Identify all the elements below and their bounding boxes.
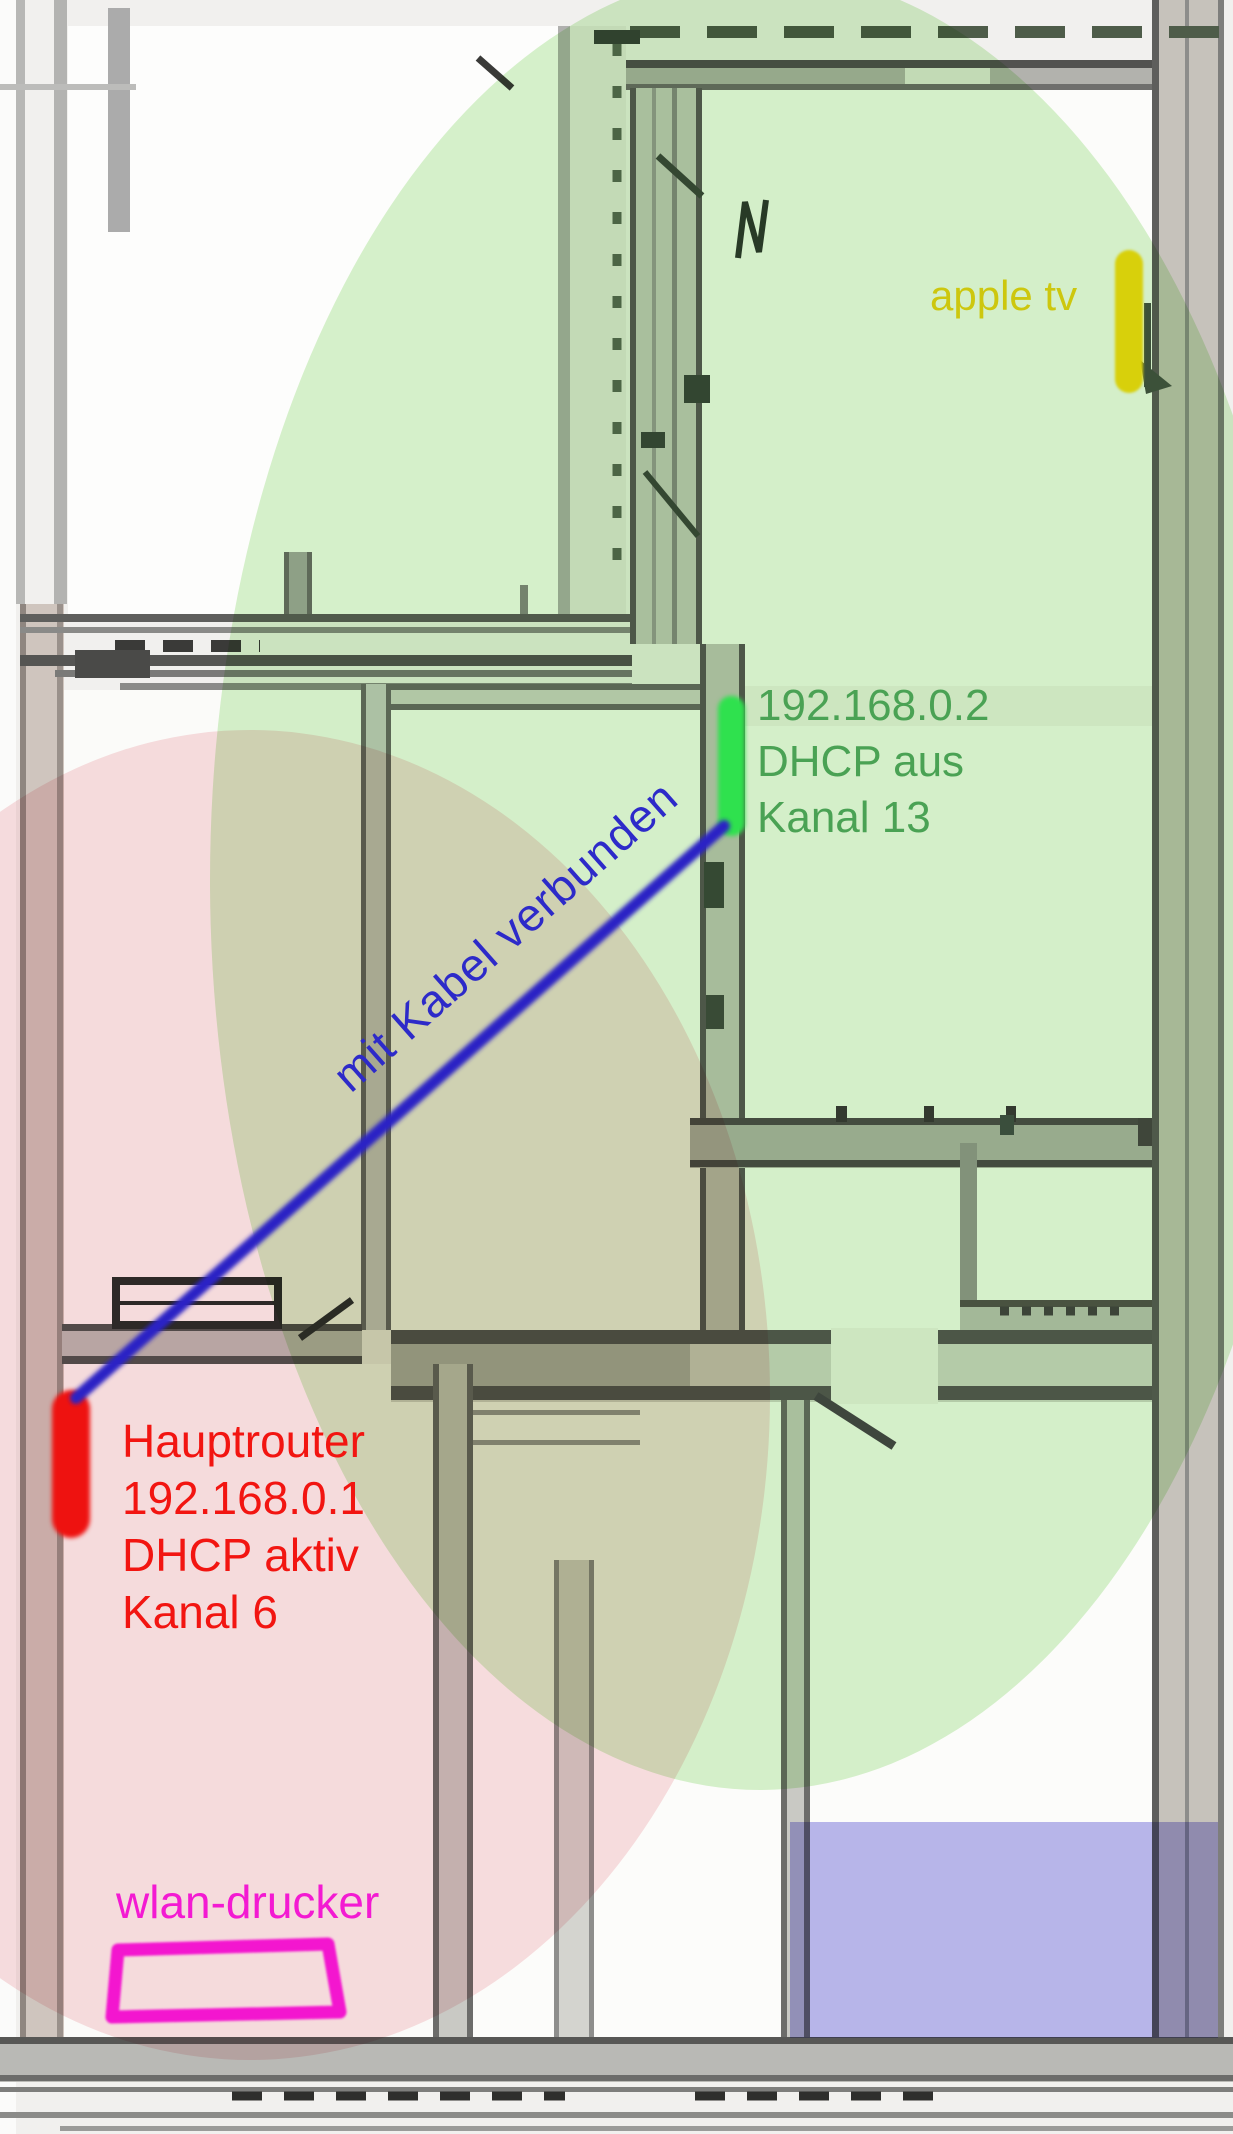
printer-outline (112, 1944, 340, 2017)
second-router-ip: 192.168.0.2 (757, 678, 989, 734)
floorplan-page: apple tv 192.168.0.2 DHCP aus Kanal 13 m… (0, 0, 1233, 2134)
main-router-label: Hauptrouter 192.168.0.1 DHCP aktiv Kanal… (122, 1413, 365, 1641)
second-router-channel: Kanal 13 (757, 790, 989, 846)
apple-tv-label: apple tv (930, 272, 1077, 320)
annotation-overlay (0, 0, 1233, 2134)
main-router-channel: Kanal 6 (122, 1584, 365, 1641)
second-router-dhcp: DHCP aus (757, 734, 989, 790)
main-router-name: Hauptrouter (122, 1413, 365, 1470)
second-router-label: 192.168.0.2 DHCP aus Kanal 13 (757, 678, 989, 846)
printer-label: wlan-drucker (116, 1875, 379, 1929)
cable-line (76, 826, 724, 1398)
main-router-ip: 192.168.0.1 (122, 1470, 365, 1527)
main-router-dhcp: DHCP aktiv (122, 1527, 365, 1584)
